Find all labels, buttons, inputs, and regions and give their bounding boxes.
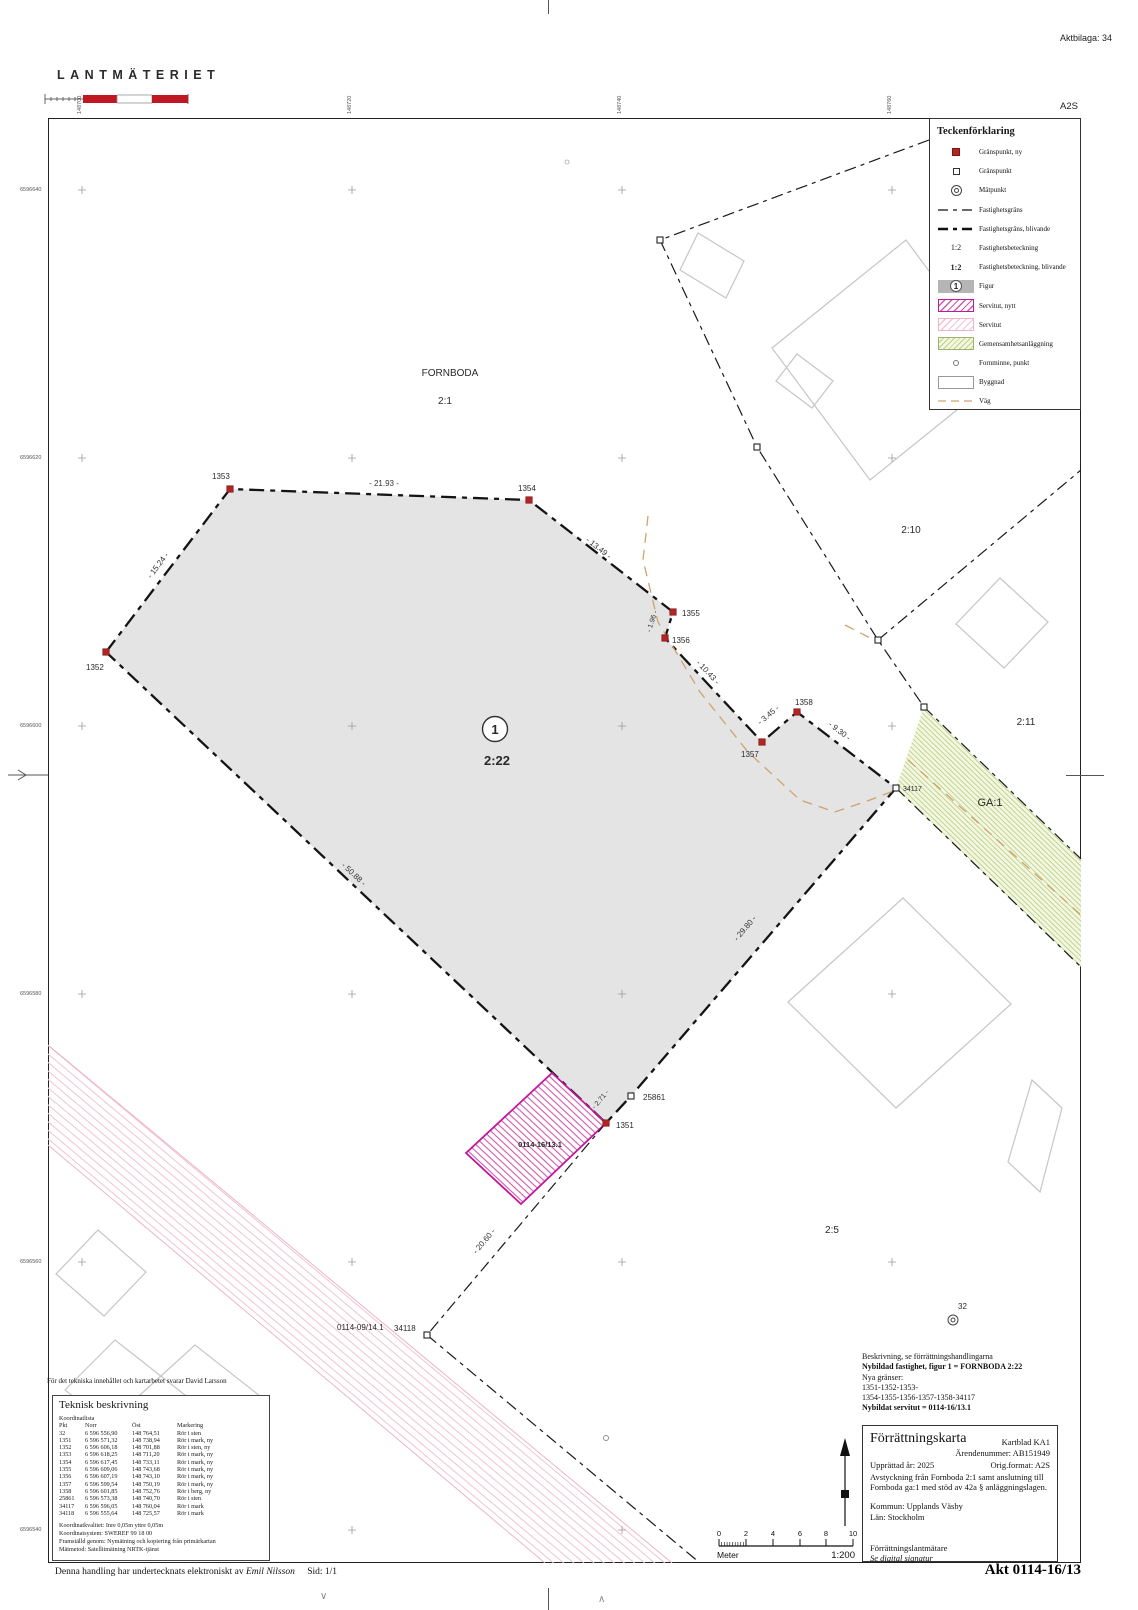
servitut-new-icon [937, 299, 975, 313]
measurement-label: - 21.93 - [369, 479, 399, 488]
point-label: 25861 [643, 1093, 666, 1102]
coord-list-title: Koordinatlista [59, 1415, 263, 1422]
coord-cell: Rör i sten [177, 1430, 263, 1437]
technical-description-box: Teknisk beskrivning Koordinatlista Pkt N… [52, 1395, 270, 1561]
beskrivning-block: Beskrivning, se förrättningshandlingarna… [862, 1352, 1080, 1414]
legend-row: Fastighetsgräns [937, 203, 1076, 217]
coord-row: 13586 596 601,85148 752,76Rör i berg, ny [59, 1488, 263, 1495]
description-line: Avstyckning från Fornboda 2:1 samt anslu… [870, 1472, 1050, 1482]
label-servitut-new: 0114-16/13.1 [518, 1140, 562, 1149]
coord-cell: 6 596 596,05 [85, 1503, 132, 1510]
coord-cell: 6 596 607,19 [85, 1473, 132, 1480]
grid-northing-label: 6596600 [20, 723, 41, 729]
scale-tick-label: 6 [798, 1529, 802, 1538]
logo-scalebar-icon [44, 92, 194, 106]
fornminne-point-icon [565, 160, 569, 164]
survey-map-page: Aktbilaga: 34 LANTMÄTERIET A2S 148700 14… [0, 0, 1138, 1610]
coord-cell: Rör i mark [177, 1503, 263, 1510]
label-2-22: 2:22 [484, 753, 510, 768]
coord-cell: 1355 [59, 1466, 85, 1473]
legend-row: Servitut [937, 318, 1076, 332]
page-number: Sid: 1/1 [307, 1567, 337, 1577]
servitut-icon [937, 318, 975, 332]
label-2-5: 2:5 [825, 1225, 839, 1236]
legend-row: Gränspunkt, ny [937, 145, 1076, 159]
scale-tick-label: 8 [824, 1529, 828, 1538]
coord-row: 13536 596 618,25148 711,20Rör i mark, ny [59, 1451, 263, 1458]
orig-format-corner-label: A2S [1060, 101, 1078, 112]
coord-cell: 148 711,20 [132, 1451, 177, 1458]
grid-easting-label: 148720 [347, 96, 354, 114]
coord-row: 13566 596 607,19148 743,10Rör i mark, ny [59, 1473, 263, 1480]
coord-cell: 6 596 601,85 [85, 1488, 132, 1495]
grid-northing-label: 6596560 [20, 1259, 41, 1265]
grid-easting-label: 148760 [887, 96, 894, 114]
scale-tick-label: 10 [849, 1529, 857, 1538]
tech-footer: Koordinatkvalitet: Inre 0,05m yttre 0,05… [59, 1522, 263, 1554]
coord-cell: 148 750,19 [132, 1481, 177, 1488]
grid-easting-label: 148740 [617, 96, 624, 114]
ga-icon [937, 337, 975, 351]
legend-row: Fornminne, punkt [937, 356, 1076, 370]
coord-cell: 148 701,88 [132, 1444, 177, 1451]
coord-cell: 148 752,76 [132, 1488, 177, 1495]
coord-cell: 148 764,51 [132, 1430, 177, 1437]
point-label: 1354 [518, 484, 536, 493]
coord-cell: 6 596 573,38 [85, 1495, 132, 1502]
tech-title: Teknisk beskrivning [59, 1399, 263, 1411]
coord-cell: Rör i sten, ny [177, 1444, 263, 1451]
grid-northing-label: 6596540 [20, 1527, 41, 1533]
coord-row: 13516 596 571,32148 738,94Rör i mark, ny [59, 1437, 263, 1444]
grid-northing-label: 6596640 [20, 187, 41, 193]
signer-name: Emil Nilsson [246, 1567, 295, 1577]
boundary-point-new-icon [937, 145, 975, 159]
arendenummer-label: Ärendenummer: AB151949 [870, 1448, 1050, 1458]
lantmateriet-logo: LANTMÄTERIET [57, 68, 220, 82]
boundary-point-icon [937, 164, 975, 178]
coord-cell: 1353 [59, 1451, 85, 1458]
fornminne-icon [937, 356, 975, 370]
coord-cell: 6 596 609,06 [85, 1466, 132, 1473]
point-label: 1352 [86, 663, 104, 672]
coord-row: 13556 596 609,06148 743,68Rör i mark, ny [59, 1466, 263, 1473]
point-label: 1356 [672, 636, 690, 645]
figur-icon: 1 [937, 279, 975, 293]
coord-cell: 1352 [59, 1444, 85, 1451]
beteckning-sample: 1:2 [937, 241, 975, 255]
label-servitut-old: 0114-09/14.1 [337, 1323, 384, 1332]
coord-cell: 6 596 571,32 [85, 1437, 132, 1444]
kommun-label: Kommun: Upplands Väsby [870, 1501, 1050, 1511]
label-figur-1: 1 [491, 722, 498, 737]
coord-cell: Rör i mark, ny [177, 1473, 263, 1480]
ga1-area [896, 707, 1081, 967]
coord-cell: 1354 [59, 1459, 85, 1466]
beteckning-new-sample: 1:2 [937, 260, 975, 274]
coord-cell: 1356 [59, 1473, 85, 1480]
coord-cell: 6 596 555,64 [85, 1510, 132, 1517]
coord-cell: Rör i mark, ny [177, 1466, 263, 1473]
coord-cell: 25861 [59, 1495, 85, 1502]
fornminne-point-icon [604, 1436, 609, 1441]
description-line: Fornboda ga:1 med stöd av 42a § anläggni… [870, 1482, 1050, 1492]
map-canvas: FORNBODA 2:1 2:10 2:11 GA:1 2:5 1 2:22 0… [48, 118, 1081, 1563]
coord-cell: Rör i berg, ny [177, 1488, 263, 1495]
coord-cell: 148 725,57 [132, 1510, 177, 1517]
coord-cell: Rör i sten [177, 1495, 263, 1502]
scale-unit-label: Meter [717, 1550, 739, 1560]
coord-cell: 148 743,10 [132, 1473, 177, 1480]
fold-chevron: ∧ [598, 1594, 605, 1605]
coord-row: 13576 596 599,54148 750,19Rör i mark, ny [59, 1481, 263, 1488]
coord-row: 13526 596 606,18148 701,88Rör i sten, ny [59, 1444, 263, 1451]
coord-row: 341176 596 596,05148 760,04Rör i mark [59, 1503, 263, 1510]
legend-row: Byggnad [937, 375, 1076, 389]
boundary-line-new-icon [937, 222, 975, 236]
legend-title: Teckenförklaring [937, 126, 1076, 137]
coord-cell: 148 738,94 [132, 1437, 177, 1444]
label-2-11: 2:11 [1017, 717, 1036, 728]
legend-row: Gemensamhetsanläggning [937, 337, 1076, 351]
scale-tick-label: 0 [717, 1529, 721, 1538]
coord-cell: Rör i mark [177, 1510, 263, 1517]
crop-mark [548, 0, 549, 14]
point-label: 34117 [903, 786, 922, 793]
coord-cell: Rör i mark, ny [177, 1481, 263, 1488]
legend-row: Mätpunkt [937, 183, 1076, 197]
byggnad-icon [937, 375, 975, 389]
fold-mark [1066, 775, 1104, 776]
coord-cell: Rör i mark, ny [177, 1437, 263, 1444]
coord-cell: 1357 [59, 1481, 85, 1488]
coord-row: 13546 596 617,45148 733,11Rör i mark, ny [59, 1459, 263, 1466]
coord-cell: 6 596 618,25 [85, 1451, 132, 1458]
point-label: 1351 [616, 1121, 634, 1130]
scale-ratio-label: 1:200 [831, 1550, 855, 1561]
coord-cell: 1358 [59, 1488, 85, 1495]
coord-row: 258616 596 573,38148 740,70Rör i sten [59, 1495, 263, 1502]
legend-row: Servitut, nytt [937, 299, 1076, 313]
coord-table-header: Pkt Norr Öst Markering [59, 1422, 263, 1429]
coord-row: 326 596 556,90148 764,51Rör i sten [59, 1430, 263, 1437]
upprattad-label: Upprättad år: 2025 [870, 1460, 934, 1470]
legend-row: 1:2Fastighetsbeteckning [937, 241, 1076, 255]
legend-row: 1:2Fastighetsbeteckning, blivande [937, 260, 1076, 274]
point-label: 34118 [394, 1324, 416, 1333]
point-label: 1353 [212, 472, 230, 481]
matpunkt-32-icon [948, 1315, 958, 1325]
lan-label: Län: Stockholm [870, 1512, 1050, 1522]
legend-row: 1Figur [937, 279, 1076, 293]
coord-cell: 148 743,68 [132, 1466, 177, 1473]
tech-responsible-note: För det tekniska innehållet och kartarbe… [47, 1377, 227, 1385]
point-label: 1355 [682, 609, 700, 618]
legend-row: Väg [937, 394, 1076, 408]
grid-northing-label: 6596620 [20, 455, 41, 461]
coord-cell: 148 740,70 [132, 1495, 177, 1502]
coord-table-body: 326 596 556,90148 764,51Rör i sten13516 … [59, 1430, 263, 1518]
akt-number: Akt 0114-16/13 [985, 1562, 1081, 1579]
legend-box: Teckenförklaring Gränspunkt, ny Gränspun… [929, 118, 1081, 410]
label-2-10: 2:10 [901, 525, 921, 536]
scale-bar: 0 2 4 6 8 10 Meter 1:200 [717, 1529, 857, 1561]
scale-tick-label: 4 [771, 1529, 775, 1538]
coord-row: 341186 596 555,64148 725,57Rör i mark [59, 1510, 263, 1517]
crop-mark [548, 1588, 549, 1610]
coord-cell: 1351 [59, 1437, 85, 1444]
coord-cell: 32 [59, 1430, 85, 1437]
surveyor-label: Förrättningslantmätare [870, 1543, 1050, 1553]
parcel-2-22-area [106, 489, 896, 1123]
grid-easting-label: 148700 [77, 96, 84, 114]
label-fornboda: FORNBODA [422, 368, 479, 379]
north-arrow-icon [840, 1438, 850, 1526]
coord-cell: 148 760,04 [132, 1503, 177, 1510]
scale-tick-label: 2 [744, 1529, 748, 1538]
kartblad-label: Kartblad KA1 [1002, 1437, 1050, 1447]
label-2-1: 2:1 [438, 396, 452, 407]
coord-cell: 148 733,11 [132, 1459, 177, 1466]
fold-chevron: ∨ [320, 1591, 327, 1602]
vag-icon [937, 394, 975, 408]
matpunkt-icon [937, 183, 975, 197]
legend-row: Gränspunkt [937, 164, 1076, 178]
fold-arrow-icon [6, 768, 50, 782]
measurement-label: - 20.60 - [471, 1227, 497, 1256]
point-label: 32 [958, 1302, 967, 1311]
legend-row: Fastighetsgräns, blivande [937, 222, 1076, 236]
grid-northing-label: 6596580 [20, 991, 41, 997]
signature-line: Denna handling har undertecknats elektro… [55, 1567, 337, 1577]
coord-cell: 6 596 556,90 [85, 1430, 132, 1437]
coord-cell: Rör i mark, ny [177, 1451, 263, 1458]
aktbilaga-label: Aktbilaga: 34 [1060, 33, 1112, 43]
coord-cell: Rör i mark, ny [177, 1459, 263, 1466]
coord-cell: 6 596 599,54 [85, 1481, 132, 1488]
coord-cell: 34118 [59, 1510, 85, 1517]
point-label: 1358 [795, 698, 813, 707]
title-block: Förrättningskarta Kartblad KA1 Ärendenum… [862, 1425, 1058, 1562]
boundary-line-icon [937, 203, 975, 217]
label-ga-1: GA:1 [977, 797, 1002, 809]
point-label: 1357 [741, 750, 759, 759]
coord-cell: 6 596 606,18 [85, 1444, 132, 1451]
origformat-label: Orig.format: A2S [991, 1460, 1051, 1470]
coord-cell: 6 596 617,45 [85, 1459, 132, 1466]
map-title: Förrättningskarta [870, 1431, 966, 1447]
coord-cell: 34117 [59, 1503, 85, 1510]
measurement-label: - 3.45 - [756, 703, 781, 726]
